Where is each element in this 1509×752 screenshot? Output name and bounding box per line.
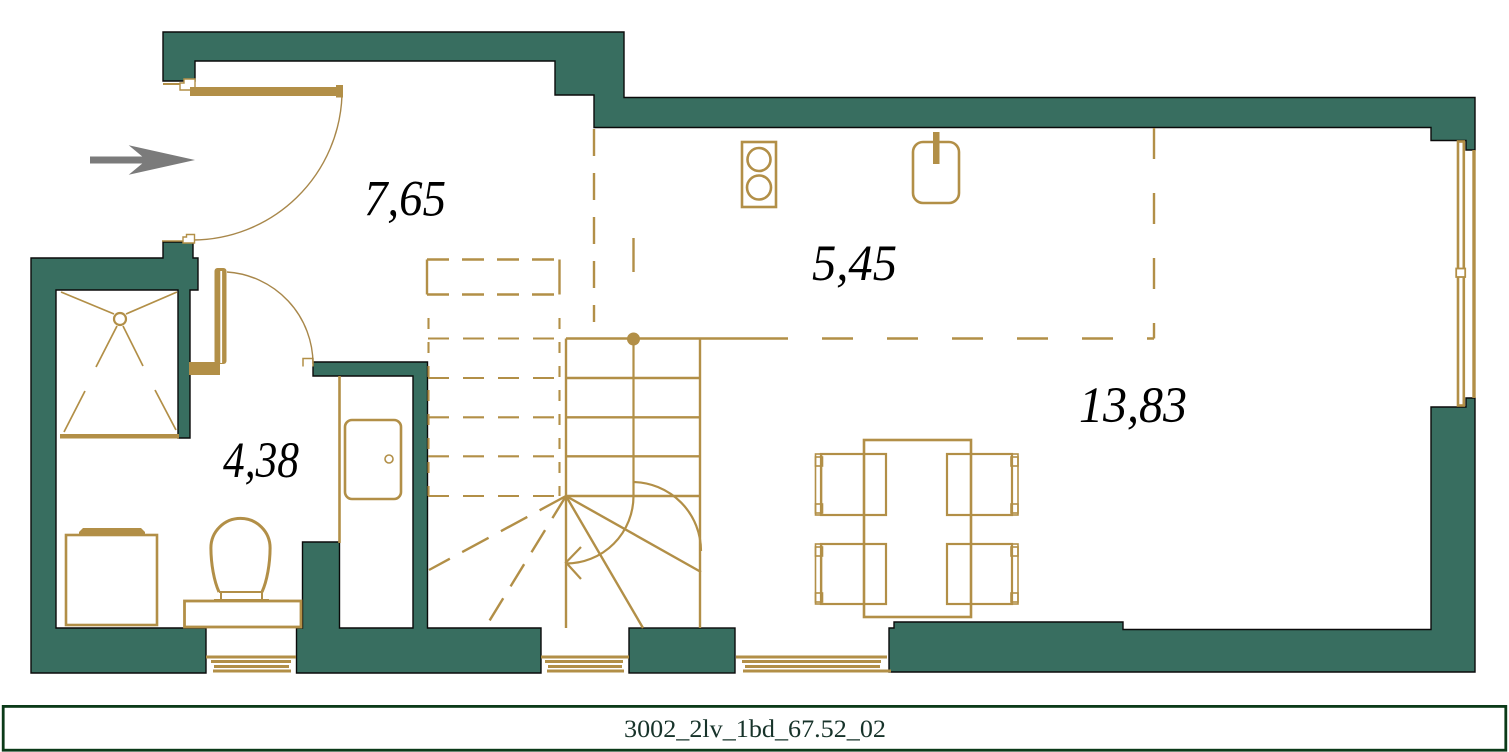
svg-text:3002_2lv_1bd_67.52_02: 3002_2lv_1bd_67.52_02 [624,716,886,743]
svg-text:7,65: 7,65 [364,172,446,228]
svg-text:5,45: 5,45 [812,236,897,292]
svg-text:4,38: 4,38 [223,433,299,489]
svg-text:13,83: 13,83 [1079,378,1187,434]
